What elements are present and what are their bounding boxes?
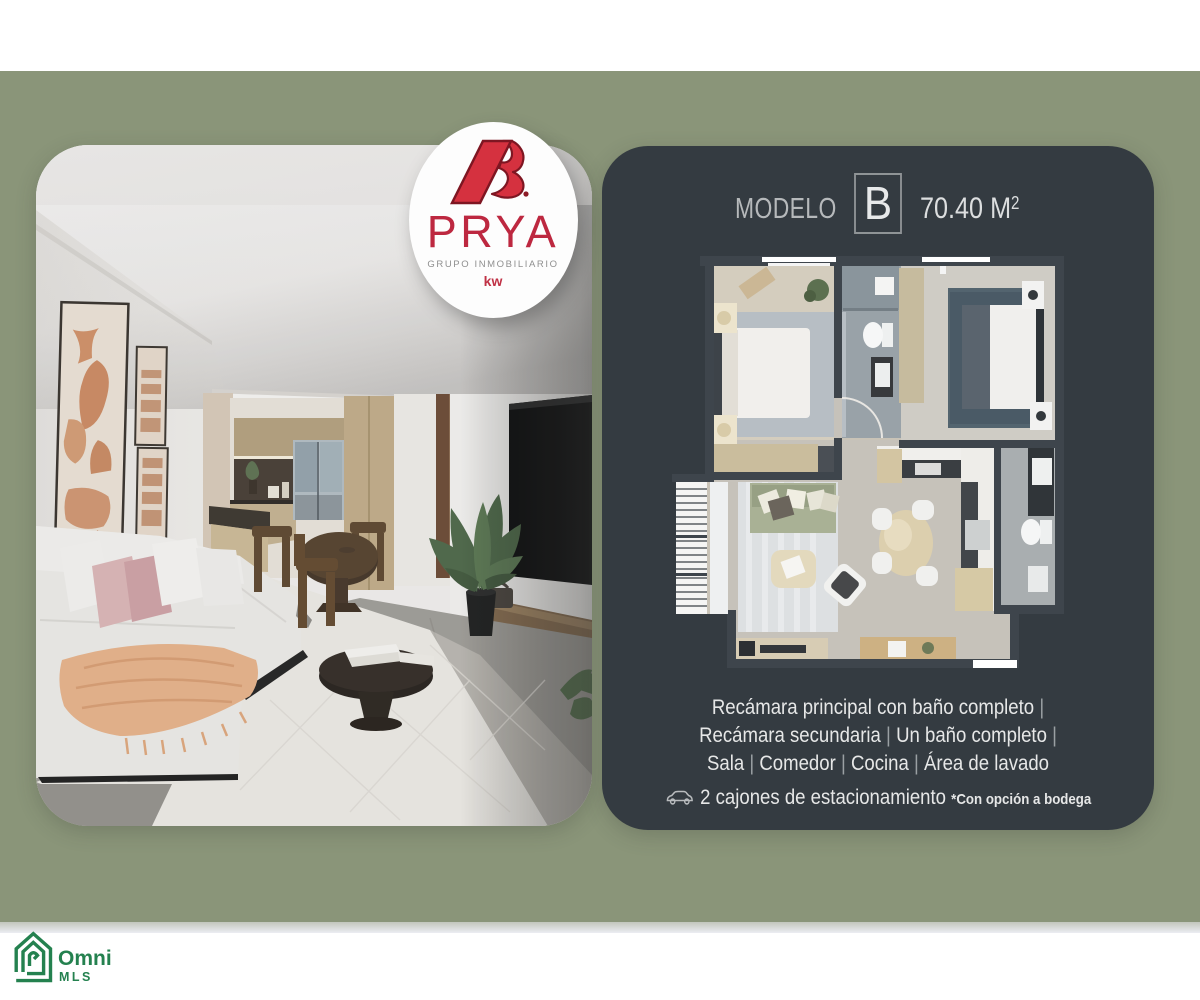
svg-text:Omni: Omni <box>58 947 112 970</box>
svg-text:PRYA: PRYA <box>427 206 559 257</box>
svg-text:kw: kw <box>484 273 503 289</box>
svg-text:GRUPO INMOBILIARIO: GRUPO INMOBILIARIO <box>427 259 558 270</box>
svg-text:MLS: MLS <box>59 970 93 984</box>
